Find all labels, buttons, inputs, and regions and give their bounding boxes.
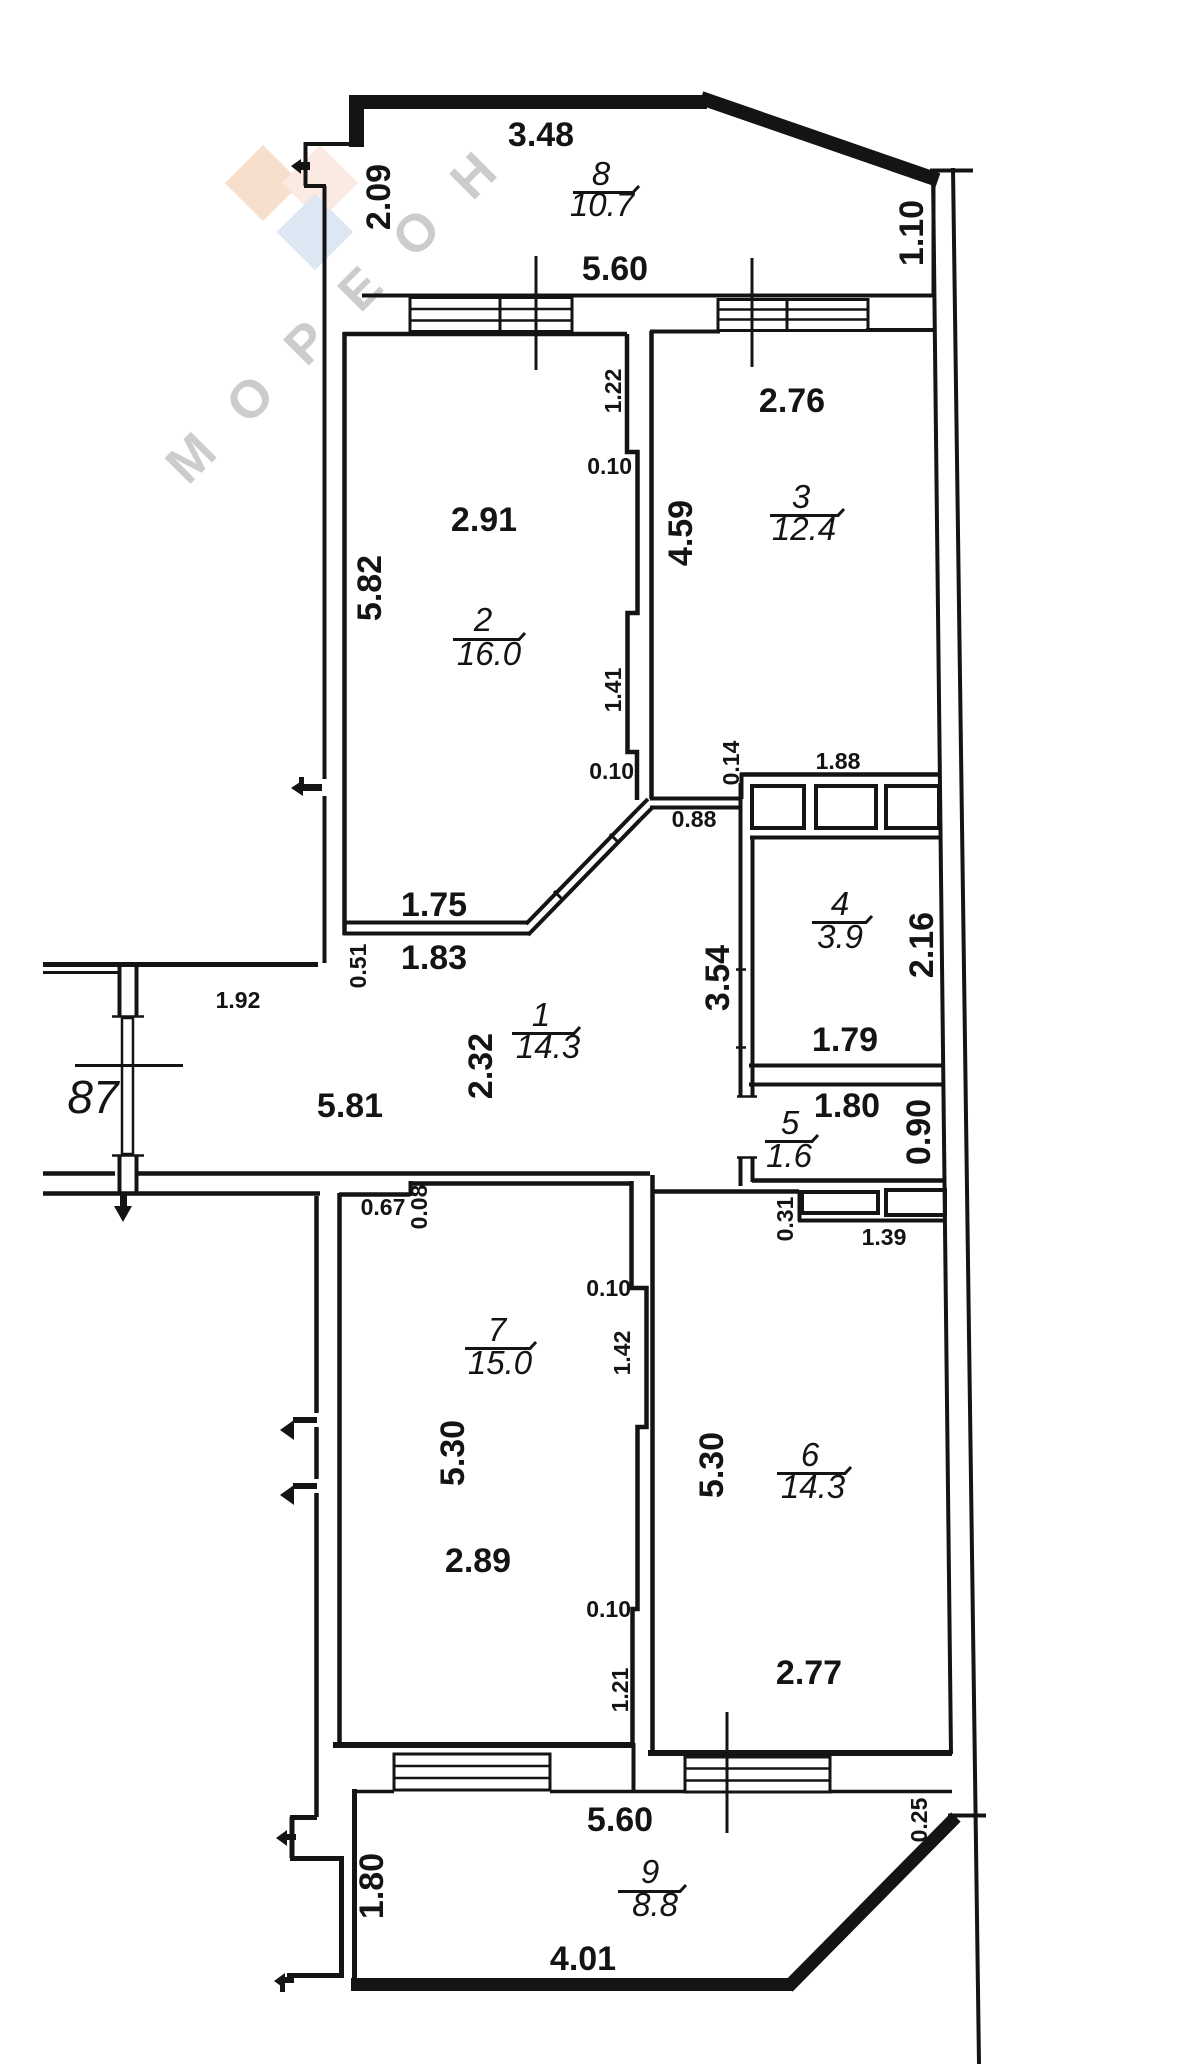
svg-text:16.0: 16.0 [457,635,522,672]
svg-text:5.82: 5.82 [351,555,389,621]
svg-text:1.83: 1.83 [401,939,467,977]
svg-text:2.89: 2.89 [445,1542,511,1580]
svg-text:1.6: 1.6 [766,1137,813,1174]
svg-text:0.08: 0.08 [406,1184,432,1229]
svg-text:1.42: 1.42 [609,1331,635,1376]
svg-text:5: 5 [781,1104,800,1141]
svg-text:5.60: 5.60 [582,250,648,288]
svg-text:15.0: 15.0 [468,1344,533,1381]
svg-text:5.30: 5.30 [693,1432,731,1498]
svg-text:2.32: 2.32 [462,1033,500,1099]
svg-text:14.3: 14.3 [781,1468,846,1505]
svg-text:8.8: 8.8 [632,1886,679,1923]
svg-text:10.7: 10.7 [570,186,636,223]
svg-text:1.80: 1.80 [814,1087,880,1125]
svg-text:5.30: 5.30 [434,1420,472,1486]
svg-text:1.10: 1.10 [893,200,931,266]
svg-text:0.25: 0.25 [906,1797,932,1842]
svg-text:1.39: 1.39 [862,1224,907,1250]
svg-text:2: 2 [473,601,492,638]
svg-text:5.60: 5.60 [587,1801,653,1839]
svg-text:0.88: 0.88 [672,806,717,832]
svg-text:0.10: 0.10 [586,1275,631,1301]
svg-text:3.54: 3.54 [699,945,737,1011]
svg-text:0.51: 0.51 [345,943,371,988]
svg-text:14.3: 14.3 [516,1028,581,1065]
svg-text:0.10: 0.10 [586,1596,631,1622]
svg-text:4.01: 4.01 [550,1940,616,1978]
svg-text:1.92: 1.92 [216,987,261,1013]
svg-text:2.77: 2.77 [776,1654,842,1692]
svg-text:1.79: 1.79 [812,1021,878,1059]
svg-text:5.81: 5.81 [317,1087,383,1125]
svg-text:0.10: 0.10 [587,453,632,479]
svg-text:7: 7 [488,1311,508,1348]
svg-text:1.75: 1.75 [401,886,467,924]
svg-text:3.9: 3.9 [817,918,863,955]
svg-text:0.90: 0.90 [900,1099,938,1165]
svg-text:2.76: 2.76 [759,382,825,420]
svg-text:87: 87 [67,1071,120,1123]
svg-text:1.22: 1.22 [600,369,626,414]
svg-text:2.09: 2.09 [360,164,398,230]
svg-text:9: 9 [641,1853,659,1890]
svg-text:2.91: 2.91 [451,501,517,539]
svg-text:0.31: 0.31 [772,1196,798,1241]
svg-text:1.21: 1.21 [607,1667,633,1712]
svg-text:2.16: 2.16 [903,912,941,978]
svg-text:4: 4 [831,885,849,922]
svg-text:3.48: 3.48 [508,116,574,154]
svg-text:1.80: 1.80 [353,1853,391,1919]
svg-text:0.67: 0.67 [361,1194,406,1220]
svg-text:0.14: 0.14 [718,740,744,785]
svg-text:1.88: 1.88 [816,748,861,774]
svg-text:4.59: 4.59 [662,500,700,566]
svg-text:12.4: 12.4 [772,510,836,547]
svg-text:1.41: 1.41 [600,667,626,712]
svg-text:0.10: 0.10 [589,758,634,784]
